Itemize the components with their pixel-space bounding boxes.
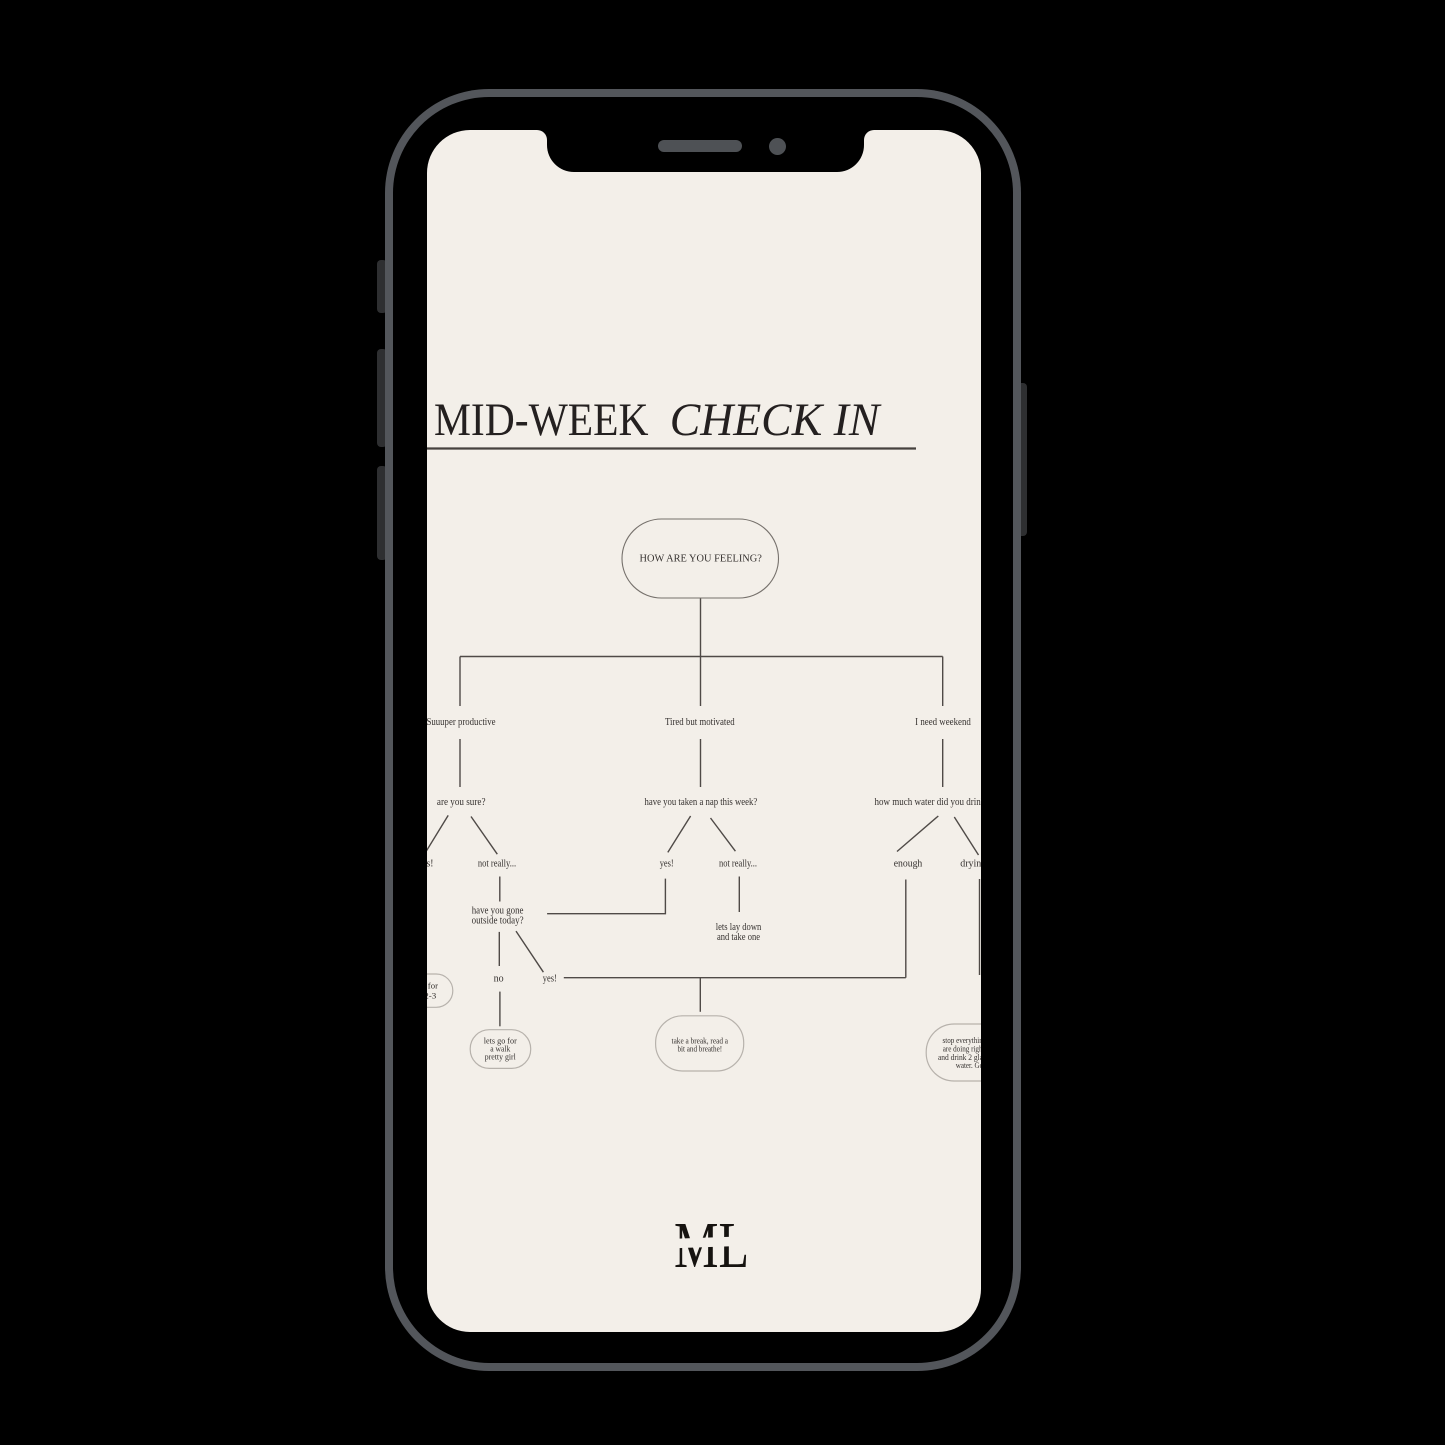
svg-text:outside today?: outside today? [472, 916, 524, 927]
svg-text:Suuuper productive: Suuuper productive [427, 717, 496, 728]
svg-text:have you taken a nap this week: have you taken a nap this week? [645, 797, 758, 808]
svg-text:yes!: yes! [660, 859, 674, 870]
svg-text:CHECK IN: CHECK IN [670, 395, 883, 446]
svg-text:enough: enough [894, 859, 923, 870]
svg-text:not really...: not really... [478, 859, 516, 870]
svg-text:and take one: and take one [717, 932, 760, 943]
svg-text:drying...: drying... [960, 859, 981, 870]
svg-text:pretty girl: pretty girl [485, 1053, 517, 1062]
svg-text:2-3: 2-3 [427, 992, 436, 1001]
svg-text:are you sure?: are you sure? [437, 797, 486, 808]
svg-text:not really...: not really... [719, 859, 757, 870]
svg-text:yes!: yes! [427, 859, 434, 870]
svg-text:bit and breathe!: bit and breathe! [677, 1044, 722, 1053]
svg-text:MID-WEEK: MID-WEEK [434, 395, 649, 446]
svg-text:water. Go!: water. Go! [956, 1061, 981, 1070]
svg-text:HOW ARE YOU FEELING?: HOW ARE YOU FEELING? [640, 553, 763, 564]
svg-text:I need weekend: I need weekend [915, 717, 971, 728]
svg-text:yes!: yes! [543, 973, 557, 984]
svg-text:in bed for: in bed for [427, 982, 438, 991]
svg-text:no: no [494, 973, 504, 984]
svg-text:Tired but motivated: Tired but motivated [665, 717, 735, 728]
svg-text:how much water did you drink t: how much water did you drink today? [875, 797, 982, 808]
